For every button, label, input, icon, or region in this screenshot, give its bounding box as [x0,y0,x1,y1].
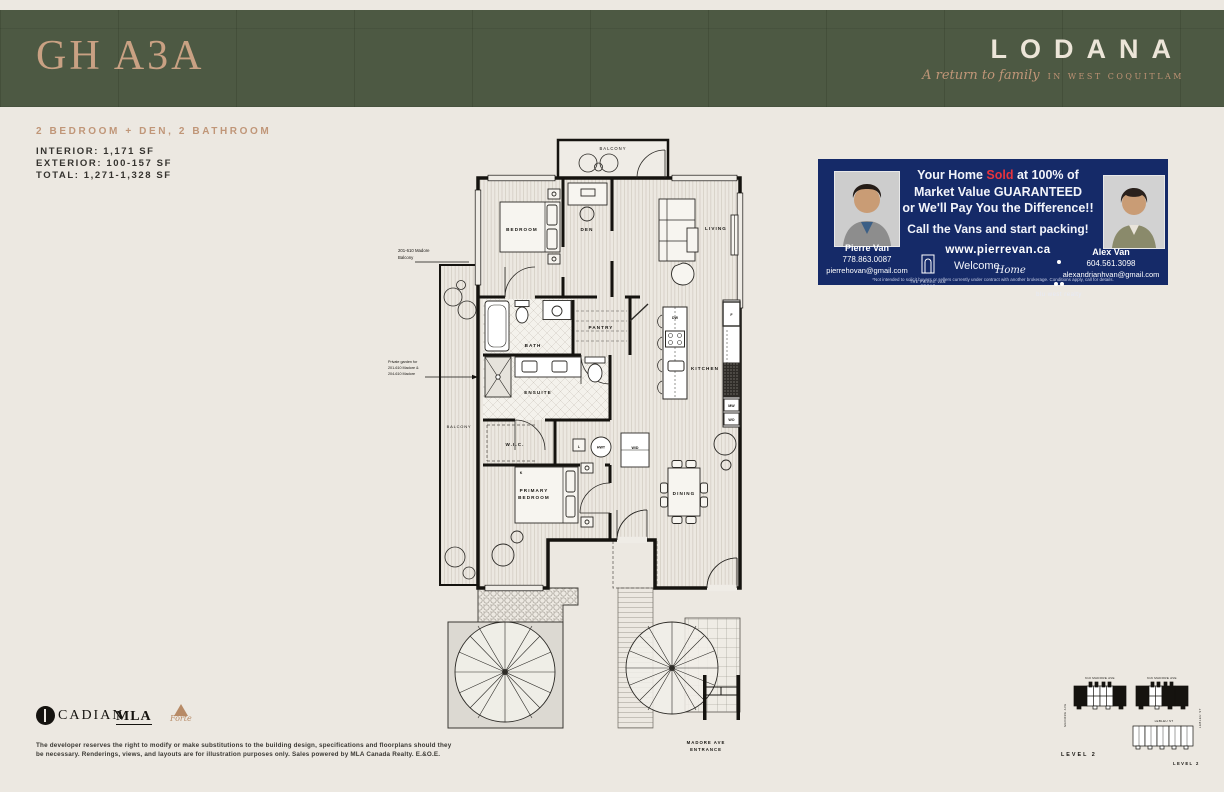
pantry-label: PANTRY [589,325,614,330]
mw-label: MW [728,404,735,408]
headline-post: at 100% of [1014,168,1079,182]
realtor-ad-banner: Your Home Sold at 100% of Market Value G… [818,159,1168,285]
keyplan-building1-label: 610 MADORE AVE [1085,676,1115,680]
top-balcony: BALCONY [558,140,668,178]
headline-pre: Your Home [917,168,986,182]
van-group-logo: THE PIERRE VAN GROUP [906,254,950,288]
paver-patio [478,588,578,622]
wic-label: W.I.C. [505,442,524,447]
left-balcony: BALCONY [440,265,478,585]
cadian-logo: CADIAN [36,706,124,725]
mla-logo: MLA [116,709,152,725]
exterior-sf: EXTERIOR: 100-157 SF [36,158,271,170]
brand-location: IN WEST COQUITLAM [1048,72,1184,81]
cadian-icon [36,706,55,725]
wd-label: W/D [632,446,639,450]
keyplan-building2-label: 616 MADORE AVE [1147,676,1177,680]
headline-line2: Market Value GUARANTEED [914,185,1082,199]
unit-summary: 2 BEDROOM + DEN, 2 BATHROOM INTERIOR: 1,… [36,126,271,182]
agent-info-alex: Alex Van 604.561.3098 alexandrianhvan@gm… [1056,247,1166,280]
keyplan-building3-label: LEBLEU ST [1155,719,1174,723]
wo-label: WO [728,418,734,422]
balcony-left-label: BALCONY [447,424,472,429]
headline-line3: or We'll Pay You the Difference!! [902,201,1093,215]
covered-entry-outline [613,540,657,588]
brand-block: LODANA A return to familyIN WEST COQUITL… [922,34,1184,83]
bath-label: BATH [525,343,542,348]
keyplan-street-left: MADORE AVE [1063,703,1067,727]
annotation-balcony-1: 201-610 Madore [398,248,430,253]
primary-label-1: PRIMARY [520,488,549,493]
living-label: LIVING [705,226,727,231]
welcome-script: Home [996,265,1026,276]
annotation-garden-3: 204-610 Madore [388,372,415,376]
ad-cta: Call the Vans and start packing! [898,222,1098,236]
ad-headline: Your Home Sold at 100% of Market Value G… [898,167,1098,217]
den-label: DEN [581,227,594,232]
agent-info-pierre: Pierre Van 778.863.0087 pierrehovan@gmai… [822,243,912,276]
kitchen-label: KITCHEN [691,366,719,371]
patio-door-gap [707,585,737,591]
footer-disclaimer: The developer reserves the right to modi… [36,741,826,759]
keyplan-street-right: LEBLEU ST [1198,708,1202,728]
welcome-text: Welcome [954,260,1000,272]
keyplan-building1 [1074,682,1126,709]
disclaimer-line-1: The developer reserves the right to modi… [36,741,826,750]
welcome-home-logo: WelcomeHome [954,260,1030,272]
keyplan-building2 [1136,682,1188,709]
interior-sf: INTERIOR: 1,171 SF [36,146,271,158]
annotation-balcony-2: Balcony [398,255,414,260]
brand-logo: LODANA [922,34,1184,65]
level-label: LEVEL 2 [1061,752,1097,758]
unit-type: 2 BEDROOM + DEN, 2 BATHROOM [36,126,271,137]
king-label: K [520,471,523,475]
dw-label: DW [672,316,679,320]
agent-avatar-icon [1104,176,1164,248]
agent-photo-pierre [834,171,900,247]
bedroom-label: BEDROOM [506,227,538,232]
keyplan: 610 MADORE AVE 616 MADORE AVE LEBLEU ST … [1053,666,1208,772]
agent-avatar-icon [835,172,899,246]
entry-door-gap [617,537,647,543]
hwt-label: HWT [597,446,606,450]
brand-tagline: A return to familyIN WEST COQUITLAM [922,68,1184,83]
header-band: GH A3A LODANA A return to familyIN WEST … [0,10,1224,107]
balcony-top-label: BALCONY [599,146,626,151]
forte-logo: Forte [174,704,192,723]
page-title: GH A3A [36,32,205,80]
level-label-small: LEVEL 2 [1173,761,1200,766]
brokerage-name: blu west realty [1030,292,1088,298]
ensuite-label: ENSUITE [524,390,552,395]
agent-name: Pierre Van [822,243,912,254]
keyplan-building3 [1133,726,1193,749]
ad-fine-print: *Not intended to solicit buyers or selle… [848,277,1138,282]
annotation-garden-1: Private garden for [388,360,418,364]
dining-label: DINING [673,491,696,496]
mla-text: MLA [116,709,152,725]
total-sf: TOTAL: 1,271-1,328 SF [36,170,271,182]
agent-photo-alex [1103,175,1165,249]
agent-email: pierrehovan@gmail.com [822,265,912,276]
floorplan-drawing: MADORE AVE ENTRANCE BALCONY BALCONY [385,135,755,755]
forte-text: Forte [170,714,192,723]
brand-tagline-text: A return to family [922,68,1039,83]
annotation-garden-2: 201-610 Madore & [388,366,419,370]
door-icon [921,254,935,274]
primary-label-2: BEDROOM [518,495,550,500]
tree-icon [455,622,555,722]
headline-sold: Sold [986,168,1013,182]
agent-phone: 604.561.3098 [1056,258,1166,269]
agent-name: Alex Van [1056,247,1166,258]
agent-phone: 778.863.0087 [822,254,912,265]
disclaimer-line-2: be necessary. Renderings, views, and lay… [36,750,826,759]
cadian-text: CADIAN [58,708,124,724]
